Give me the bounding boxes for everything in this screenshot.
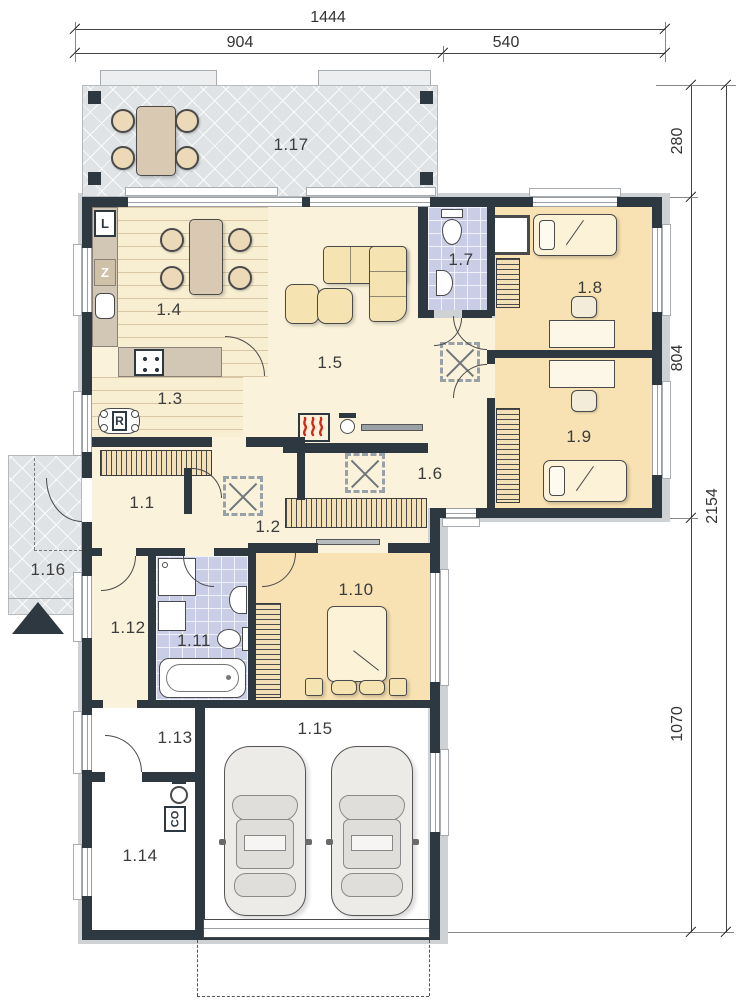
porch-overhang-dashed bbox=[34, 458, 35, 550]
room-label-1-4: 1.4 bbox=[156, 300, 181, 320]
ceiling-hatch bbox=[223, 476, 263, 516]
dim-label-904: 904 bbox=[224, 34, 257, 52]
pantry-burner bbox=[131, 410, 139, 418]
sink-1-11 bbox=[229, 586, 247, 614]
pantry-burner bbox=[131, 424, 139, 432]
room-label-1-16: 1.16 bbox=[30, 560, 65, 580]
dim-label-1070: 1070 bbox=[669, 703, 687, 745]
wall bbox=[137, 700, 440, 708]
toilet-tank-1-7 bbox=[441, 209, 463, 218]
sofa-vertical bbox=[369, 246, 407, 322]
dining-chair bbox=[160, 266, 184, 290]
wall bbox=[214, 548, 250, 556]
car-mirror bbox=[412, 839, 419, 845]
window-garage bbox=[430, 753, 440, 832]
window-kitchen bbox=[82, 248, 92, 312]
room-label-1-17: 1.17 bbox=[273, 135, 308, 155]
desk-1-9 bbox=[549, 360, 615, 388]
desk-chair-1-9 bbox=[571, 390, 597, 412]
wardrobe-1-9 bbox=[496, 408, 520, 503]
pillow-1-9 bbox=[549, 466, 565, 496]
tv-console bbox=[361, 424, 423, 431]
nightstand bbox=[305, 678, 323, 696]
dim-line-top-split bbox=[75, 53, 665, 54]
room-label-1-6: 1.6 bbox=[417, 464, 442, 484]
dishwasher-unit: Z bbox=[94, 259, 116, 286]
room-label-1-3: 1.3 bbox=[157, 389, 182, 409]
room-label-1-13: 1.13 bbox=[157, 728, 192, 748]
window-1-12 bbox=[82, 576, 92, 638]
car-rear-window bbox=[234, 873, 296, 897]
window-1-8 bbox=[533, 197, 617, 207]
dim-label-540: 540 bbox=[490, 34, 523, 52]
terrace-chair bbox=[175, 146, 199, 170]
dining-table bbox=[189, 219, 223, 295]
window-wing-bottom bbox=[446, 508, 476, 518]
window-sill bbox=[73, 711, 82, 774]
window-sill bbox=[125, 187, 278, 196]
terrace-post bbox=[420, 172, 433, 185]
car-roof-panel bbox=[244, 835, 286, 851]
wall bbox=[92, 437, 212, 447]
window-sill bbox=[306, 187, 436, 196]
window-1-14 bbox=[82, 848, 92, 896]
window-1-3 bbox=[82, 395, 92, 452]
fridge-unit: L bbox=[94, 210, 116, 237]
washing-machine-dot bbox=[162, 562, 168, 568]
wall bbox=[248, 543, 256, 700]
wall bbox=[136, 548, 185, 556]
car-mirror bbox=[326, 839, 333, 845]
car-windshield bbox=[339, 795, 405, 821]
window-1-13 bbox=[82, 715, 92, 770]
desk-chair-1-8 bbox=[571, 296, 597, 318]
room-label-1-15: 1.15 bbox=[297, 719, 332, 739]
bed-cushion bbox=[331, 680, 357, 695]
terrace-chair bbox=[111, 109, 135, 133]
wall bbox=[297, 443, 305, 500]
entrance-arrow bbox=[12, 602, 64, 634]
room-label-1-11: 1.11 bbox=[177, 631, 211, 651]
pillow-1-8 bbox=[539, 220, 555, 250]
window-1-10 bbox=[430, 573, 440, 682]
driveway-dashed bbox=[429, 940, 430, 996]
boiler-label: CO bbox=[169, 811, 181, 828]
car-mirror bbox=[305, 839, 312, 845]
room-label-1-8: 1.8 bbox=[577, 278, 602, 298]
terrace-post bbox=[420, 91, 433, 104]
ceiling-hatch bbox=[345, 453, 385, 493]
terrace-glass-door bbox=[128, 197, 302, 207]
wall bbox=[92, 548, 102, 556]
car-rear-window bbox=[341, 873, 403, 897]
driveway-dashed bbox=[197, 940, 198, 996]
wall bbox=[487, 398, 495, 508]
dim-ext bbox=[443, 46, 444, 62]
bed-cushion bbox=[359, 680, 385, 695]
dining-chair bbox=[160, 228, 184, 252]
window-sill bbox=[529, 188, 621, 197]
dim-ext bbox=[666, 197, 698, 198]
dining-chair bbox=[228, 228, 252, 252]
dim-line-right-outer bbox=[726, 85, 727, 932]
terrace-glass-door bbox=[310, 197, 430, 207]
window-sill bbox=[73, 244, 82, 316]
terrace-chair bbox=[111, 146, 135, 170]
wall bbox=[195, 708, 205, 930]
wardrobe-1-6 bbox=[285, 498, 427, 528]
wall bbox=[92, 700, 103, 708]
window-sill bbox=[440, 569, 449, 686]
wall bbox=[388, 543, 430, 553]
water-heater bbox=[170, 786, 188, 804]
dim-label-1444: 1444 bbox=[307, 9, 349, 27]
dining-chair bbox=[228, 266, 252, 290]
window-sill bbox=[73, 844, 82, 900]
dim-ext bbox=[666, 518, 698, 519]
stove-burners bbox=[134, 349, 164, 376]
garage-door bbox=[203, 919, 430, 938]
armchair bbox=[285, 284, 319, 324]
room-label-1-12: 1.12 bbox=[110, 618, 145, 638]
floor-hall-gap bbox=[103, 700, 137, 708]
desk-1-8 bbox=[549, 320, 615, 348]
wall bbox=[487, 350, 495, 364]
terrace-post bbox=[88, 172, 101, 185]
wall bbox=[418, 310, 434, 318]
window-sill bbox=[662, 224, 671, 316]
wood-stove bbox=[340, 419, 355, 434]
wall bbox=[148, 556, 156, 700]
pantry-burner bbox=[100, 424, 108, 432]
dim-line-top-overall bbox=[75, 29, 665, 30]
toilet-bowl-1-11 bbox=[217, 629, 241, 649]
room-label-1-14: 1.14 bbox=[122, 846, 157, 866]
dim-label-804: 804 bbox=[669, 342, 687, 375]
room-label-1-5: 1.5 bbox=[317, 353, 342, 373]
wall bbox=[418, 197, 428, 318]
terrace-post bbox=[88, 91, 101, 104]
car bbox=[224, 746, 306, 916]
room-label-1-10: 1.10 bbox=[338, 580, 373, 600]
dim-line-right-inner bbox=[691, 85, 692, 932]
room-label-1-9: 1.9 bbox=[566, 427, 591, 447]
wall bbox=[495, 350, 652, 358]
porch-step-line bbox=[8, 598, 82, 599]
window-1-9 bbox=[652, 385, 662, 475]
room-label-1-7: 1.7 bbox=[448, 250, 473, 270]
terrace-table bbox=[136, 106, 176, 176]
car bbox=[331, 746, 413, 916]
porch-overhang-dashed bbox=[34, 550, 82, 551]
dim-label-280: 280 bbox=[669, 125, 687, 158]
floor-plan: 1444 904 540 280 804 1070 2154 L Z bbox=[0, 0, 737, 1000]
room-label-1-2: 1.2 bbox=[255, 517, 280, 537]
car-mirror bbox=[219, 839, 226, 845]
entrance-door-opening bbox=[82, 478, 92, 522]
wall bbox=[487, 197, 495, 316]
window-sill bbox=[73, 391, 82, 456]
bath-cabinet bbox=[158, 601, 186, 631]
pantry-appliance-label: R bbox=[112, 411, 127, 431]
car-roof-panel bbox=[351, 835, 393, 851]
wall bbox=[92, 772, 105, 782]
window-sill bbox=[440, 749, 449, 836]
sliding-door-1-10 bbox=[316, 539, 380, 545]
car-windshield bbox=[232, 795, 298, 821]
flame-icon bbox=[300, 416, 326, 438]
pantry-burner bbox=[100, 410, 108, 418]
window-1-8-side bbox=[652, 228, 662, 312]
window-sill bbox=[442, 518, 480, 527]
nightstand bbox=[389, 678, 407, 696]
kitchen-sink bbox=[95, 293, 115, 319]
driveway-dashed bbox=[197, 996, 429, 997]
window-sill bbox=[73, 572, 82, 642]
window-sill bbox=[662, 381, 671, 479]
wall bbox=[184, 468, 192, 514]
wall bbox=[248, 543, 318, 553]
coffee-table bbox=[317, 288, 353, 324]
dim-label-2154: 2154 bbox=[704, 485, 722, 527]
bathtub-drain bbox=[226, 675, 231, 680]
terrace-chair bbox=[175, 109, 199, 133]
boiler-vent bbox=[172, 778, 186, 784]
wardrobe-1-8 bbox=[496, 258, 520, 308]
cabinet-1-8 bbox=[492, 215, 530, 255]
boiler-unit: CO bbox=[164, 806, 186, 832]
room-label-1-1: 1.1 bbox=[129, 493, 154, 513]
stove-pipe bbox=[339, 413, 356, 418]
